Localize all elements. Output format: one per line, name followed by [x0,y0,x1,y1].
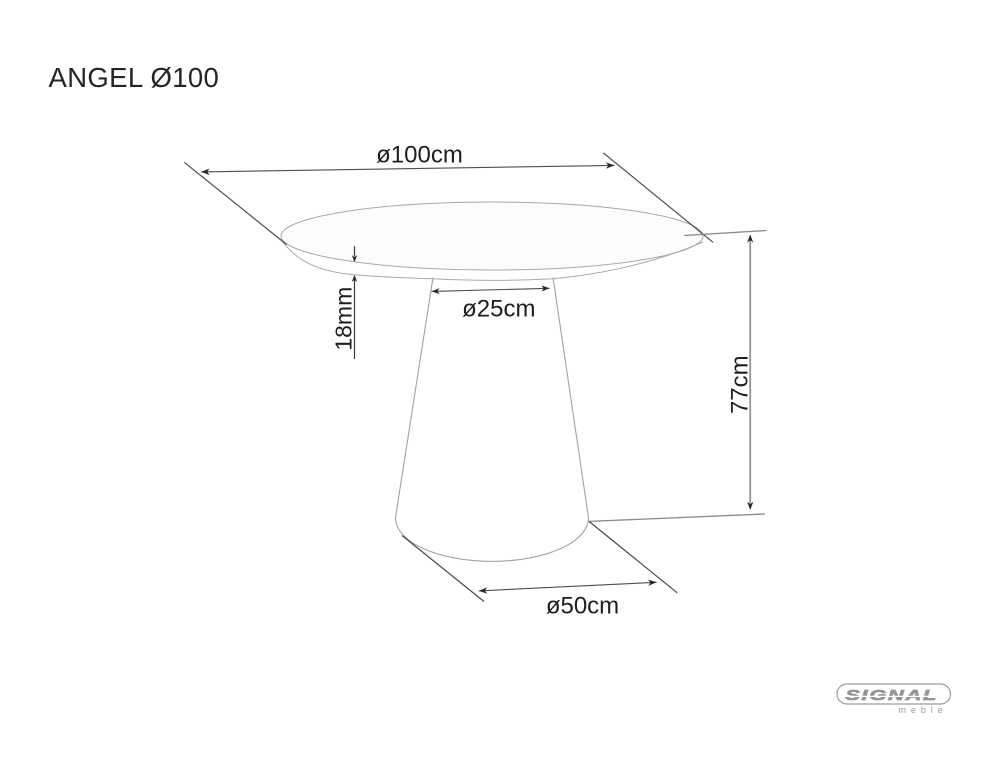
svg-text:ANGEL Ø100: ANGEL Ø100 [49,62,220,93]
svg-text:77cm: 77cm [727,355,754,414]
svg-text:SIGNAL: SIGNAL [845,686,938,702]
svg-text:ø25cm: ø25cm [462,295,535,322]
svg-text:18mm: 18mm [330,287,356,351]
svg-text:meble: meble [898,705,947,715]
svg-text:ø100cm: ø100cm [376,141,463,168]
svg-text:ø50cm: ø50cm [546,592,619,619]
